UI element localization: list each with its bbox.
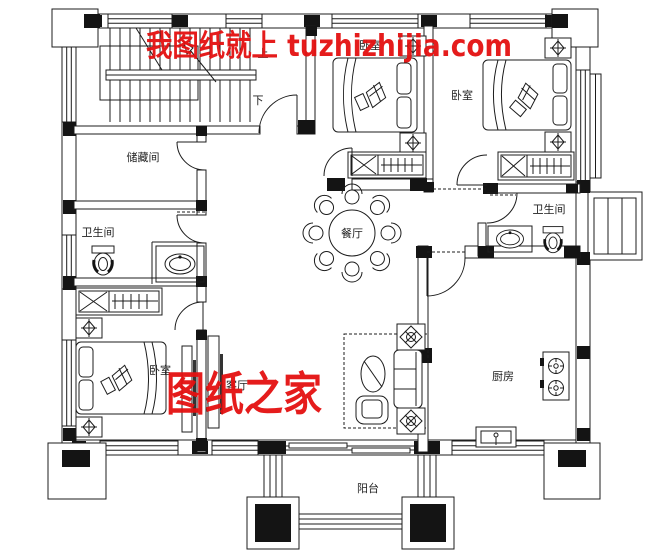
storage-door	[177, 142, 205, 170]
bathroom-right-label: 卫生间	[533, 202, 566, 216]
sink-right	[497, 230, 524, 248]
bed-bottom-left	[76, 342, 166, 414]
wardrobe-top-right	[498, 152, 574, 180]
window-bottom-left2	[212, 441, 258, 455]
corner-pillar-bottom-right	[544, 443, 600, 499]
sofa	[394, 350, 422, 408]
bed-top-right	[483, 60, 571, 130]
bathroom-left-label: 卫生间	[82, 225, 115, 239]
window-right-bedroom2	[576, 70, 601, 182]
balcony-sliding-door	[286, 441, 414, 454]
bathroom-right-door	[487, 193, 517, 223]
wardrobe-bottom-left	[76, 288, 162, 315]
nightstand	[76, 318, 102, 338]
stair-down-label: 下	[253, 94, 264, 107]
stair-hall-door	[259, 95, 297, 133]
watermark-bottom: 图纸之家	[166, 367, 322, 421]
corner-pillar-top-left	[52, 9, 100, 47]
bed-top-center	[333, 58, 417, 132]
window-top-bedroom2	[470, 14, 546, 28]
bedroom-top-right-label: 卧室	[451, 88, 473, 102]
window-left-bedroom	[62, 340, 76, 426]
storage-label: 储藏间	[127, 150, 160, 164]
nightstand	[545, 132, 571, 152]
nightstand	[76, 417, 102, 437]
window-left-stairs	[62, 46, 76, 122]
side-table-plant	[397, 324, 425, 350]
kitchen-sink	[476, 427, 516, 447]
bedroom-bottom-left-door	[175, 302, 203, 330]
toilet-right	[543, 227, 563, 253]
wardrobe-top-center	[348, 152, 426, 178]
kitchen-door	[427, 258, 465, 296]
balcony: 阳台	[247, 441, 454, 549]
kitchen-label: 厨房	[492, 370, 514, 383]
nightstand	[545, 38, 571, 58]
dining-area: 餐厅	[303, 184, 401, 282]
dining-label: 餐厅	[341, 226, 363, 240]
bedroom-top-right-door	[457, 155, 487, 185]
window-bottom-left	[100, 441, 178, 455]
window-top-bedroom1	[332, 14, 418, 28]
toilet-left	[92, 246, 114, 275]
kitchen: 厨房	[427, 258, 569, 447]
bay-window-right-bathroom	[588, 192, 642, 260]
floor-plan-canvas: 上 下 储藏间 卫生间	[0, 0, 650, 554]
nightstand	[400, 133, 426, 153]
bathroom-left: 卫生间	[82, 215, 206, 284]
stove	[540, 352, 569, 400]
watermark-top: 我图纸就上 tuzhizhijia.com	[146, 29, 512, 64]
bathroom-right: 卫生间	[487, 193, 566, 253]
window-top-stairs	[108, 14, 172, 28]
corner-pillar-bottom-left	[48, 443, 106, 499]
balcony-railing	[299, 514, 402, 529]
floor-plan-svg: 上 下 储藏间 卫生间	[0, 0, 650, 554]
side-table-plant	[397, 408, 425, 434]
balcony-label: 阳台	[357, 481, 379, 495]
storage-room: 储藏间	[127, 142, 206, 170]
armchair	[356, 396, 388, 424]
balcony-column-right	[402, 497, 454, 549]
bathroom-left-door	[177, 215, 205, 243]
window-top-landing	[226, 14, 262, 28]
balcony-column-left	[247, 497, 299, 549]
sink-left	[165, 254, 195, 274]
